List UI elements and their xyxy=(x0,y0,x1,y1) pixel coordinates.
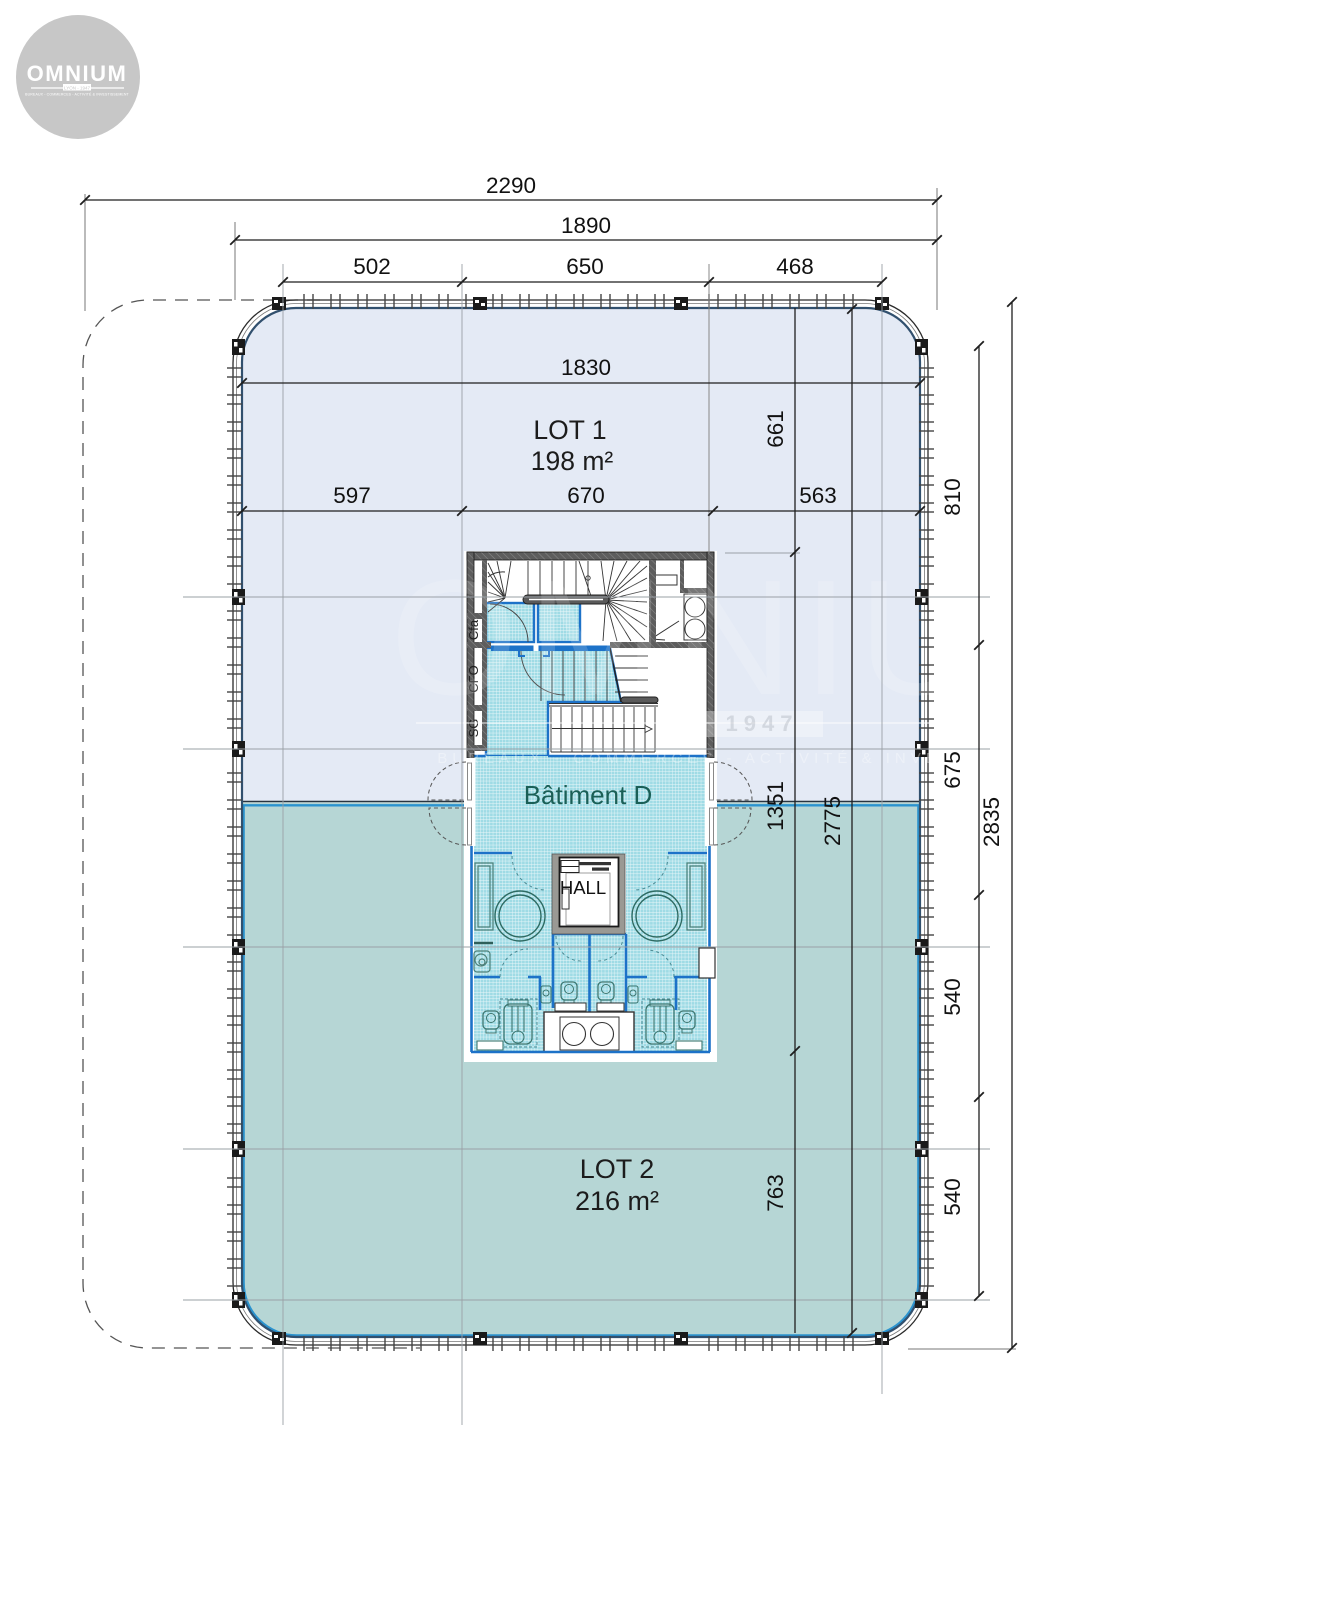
svg-text:540: 540 xyxy=(940,978,965,1016)
svg-text:502: 502 xyxy=(353,254,391,279)
svg-text:LOT 1: LOT 1 xyxy=(533,415,606,445)
svg-text:2290: 2290 xyxy=(486,173,536,198)
svg-text:650: 650 xyxy=(566,254,604,279)
svg-text:563: 563 xyxy=(799,483,837,508)
svg-text:540: 540 xyxy=(940,1178,965,1216)
svg-text:216 m²: 216 m² xyxy=(575,1186,659,1216)
svg-text:810: 810 xyxy=(940,478,965,516)
svg-text:670: 670 xyxy=(567,483,605,508)
svg-text:2775: 2775 xyxy=(820,796,845,846)
svg-text:BUREAUX - COMMERCES - ACTIVITÉ: BUREAUX - COMMERCES - ACTIVITÉ & INVESTI… xyxy=(25,92,129,97)
svg-text:675: 675 xyxy=(940,751,965,789)
svg-text:661: 661 xyxy=(763,410,788,448)
svg-text:LYON - 1947: LYON - 1947 xyxy=(64,86,90,91)
svg-text:HALL: HALL xyxy=(560,877,606,898)
svg-text:BUREAUX - COMMERCES - ACTIVITÉ: BUREAUX - COMMERCES - ACTIVITÉ & INVESTI… xyxy=(437,750,1086,767)
svg-text:468: 468 xyxy=(776,254,814,279)
svg-text:1947: 1947 xyxy=(726,711,799,736)
svg-text:2835: 2835 xyxy=(979,797,1004,847)
svg-text:597: 597 xyxy=(333,483,371,508)
svg-text:198 m²: 198 m² xyxy=(531,446,614,476)
svg-text:1830: 1830 xyxy=(561,355,611,380)
svg-text:OMNIUM: OMNIUM xyxy=(27,61,128,86)
svg-text:LOT 2: LOT 2 xyxy=(580,1154,655,1184)
svg-text:OMNIUM: OMNIUM xyxy=(390,546,1133,729)
svg-text:763: 763 xyxy=(763,1174,788,1212)
svg-text:1890: 1890 xyxy=(561,213,611,238)
svg-text:Bâtiment D: Bâtiment D xyxy=(524,780,653,810)
svg-text:1351: 1351 xyxy=(763,781,788,831)
